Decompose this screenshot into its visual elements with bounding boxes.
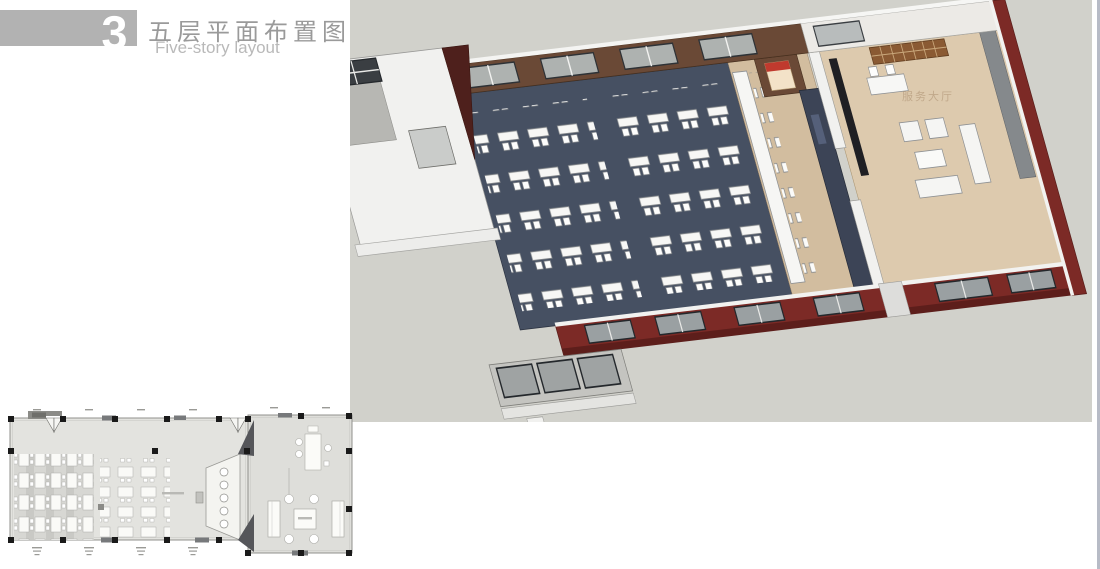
plan-room-label-lounge [298,517,312,519]
floor-plan-svg [2,406,356,566]
presentation-slide: 3 五层平面布置图 Five-story layout [0,0,1100,569]
plan-desks-left [14,454,94,540]
coffee-table [915,149,947,169]
plan-dimension-marks-bottom [32,547,198,555]
render-3d-view: 服务大厅 [350,0,1092,422]
render-3d-svg [350,0,1092,422]
slide-number-box: 3 [0,10,137,46]
building-3d [350,0,1092,422]
plan-room-label-classroom [162,492,184,494]
plan-dimension-marks-top [33,407,330,410]
slide-header: 3 五层平面布置图 Five-story layout [0,0,350,70]
plan-desks-middle [100,458,170,538]
plan-vent [278,413,292,418]
plan-equipment-dark [32,413,46,418]
slide-number: 3 [92,7,137,59]
slide-title-english: Five-story layout [155,38,280,58]
plan-lectern [196,492,203,503]
plan-vent [195,538,209,543]
plan-small-block [98,504,104,510]
balcony-bay [489,349,642,422]
plan-vent [174,416,186,421]
